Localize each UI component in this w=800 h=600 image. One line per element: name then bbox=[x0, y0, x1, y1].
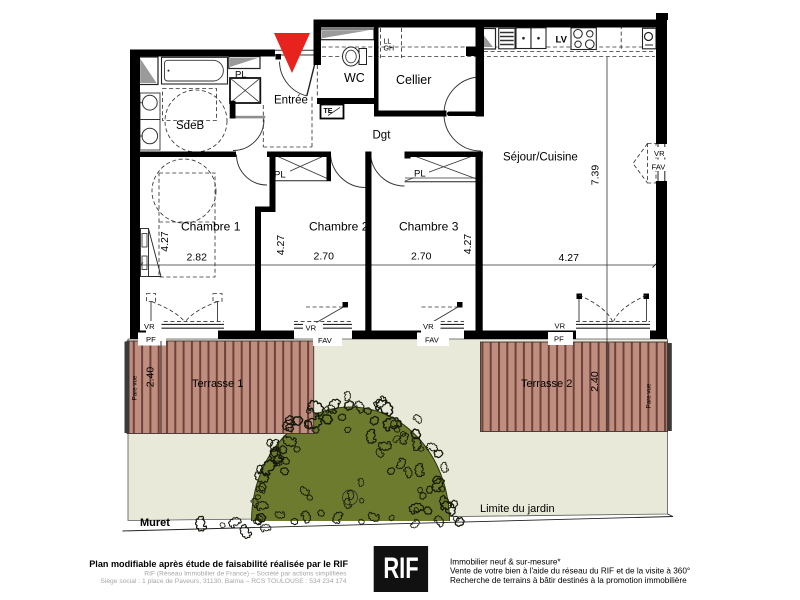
svg-text:PL: PL bbox=[414, 169, 426, 180]
svg-text:FAV: FAV bbox=[652, 163, 667, 172]
svg-text:VR: VR bbox=[555, 322, 566, 331]
svg-text:LV: LV bbox=[556, 35, 568, 46]
svg-text:PL: PL bbox=[235, 70, 247, 81]
svg-text:Muret: Muret bbox=[140, 517, 170, 529]
svg-text:Recherche de terrains à bâtir: Recherche de terrains à bâtir destinés à… bbox=[450, 576, 687, 585]
svg-text:RIF: RIF bbox=[383, 551, 418, 585]
svg-text:LL: LL bbox=[384, 39, 392, 46]
svg-text:Limite du jardin: Limite du jardin bbox=[480, 503, 555, 515]
svg-text:SdeB: SdeB bbox=[176, 120, 204, 132]
svg-text:VR: VR bbox=[144, 322, 155, 331]
svg-text:WC: WC bbox=[344, 71, 365, 85]
svg-text:Immobilier neuf & sur-mesure*: Immobilier neuf & sur-mesure* bbox=[450, 558, 561, 567]
svg-text:Pare vue: Pare vue bbox=[646, 383, 653, 408]
svg-text:Chambre 2: Chambre 2 bbox=[309, 220, 369, 234]
svg-text:RIF (Réseau Immobilier de Fran: RIF (Réseau Immobilier de France) – Soci… bbox=[144, 570, 347, 577]
svg-text:4.27: 4.27 bbox=[275, 235, 287, 256]
svg-text:PF: PF bbox=[554, 335, 564, 344]
svg-text:Cellier: Cellier bbox=[396, 73, 431, 87]
svg-text:TE: TE bbox=[324, 108, 333, 115]
svg-text:2.82: 2.82 bbox=[187, 252, 208, 264]
svg-text:VR: VR bbox=[654, 149, 665, 158]
svg-text:2.70: 2.70 bbox=[411, 251, 432, 263]
svg-text:7.39: 7.39 bbox=[590, 165, 602, 186]
svg-text:Plan modifiable après étude de: Plan modifiable après étude de faisabili… bbox=[89, 559, 348, 569]
svg-text:4.27: 4.27 bbox=[462, 234, 474, 255]
svg-text:Séjour/Cuisine: Séjour/Cuisine bbox=[503, 152, 578, 164]
svg-text:2.70: 2.70 bbox=[314, 251, 335, 263]
svg-text:2.40: 2.40 bbox=[589, 371, 601, 392]
svg-text:Vente de votre bien à l'aide d: Vente de votre bien à l'aide du réseau d… bbox=[450, 567, 690, 576]
svg-text:PL: PL bbox=[274, 170, 286, 181]
svg-text:VR: VR bbox=[423, 322, 434, 331]
svg-text:2.40: 2.40 bbox=[145, 367, 157, 388]
svg-text:Terrasse 1: Terrasse 1 bbox=[192, 378, 243, 390]
svg-text:Terrasse 2: Terrasse 2 bbox=[521, 378, 572, 390]
svg-text:Dgt: Dgt bbox=[373, 130, 392, 142]
svg-text:Chambre 1: Chambre 1 bbox=[181, 220, 241, 234]
svg-text:FAV: FAV bbox=[318, 336, 333, 345]
svg-text:4.27: 4.27 bbox=[559, 252, 580, 264]
svg-text:GH: GH bbox=[384, 46, 395, 53]
svg-text:Entrée: Entrée bbox=[274, 95, 308, 107]
svg-text:Siège social : 1 place de Pave: Siège social : 1 place de Paveurs, 31130… bbox=[100, 578, 346, 585]
svg-text:FAV: FAV bbox=[425, 336, 440, 345]
svg-text:VR: VR bbox=[306, 324, 317, 333]
svg-text:Pare vue: Pare vue bbox=[132, 375, 139, 400]
svg-text:PF: PF bbox=[146, 335, 156, 344]
svg-text:Chambre 3: Chambre 3 bbox=[399, 220, 459, 234]
svg-text:4.27: 4.27 bbox=[159, 231, 171, 252]
